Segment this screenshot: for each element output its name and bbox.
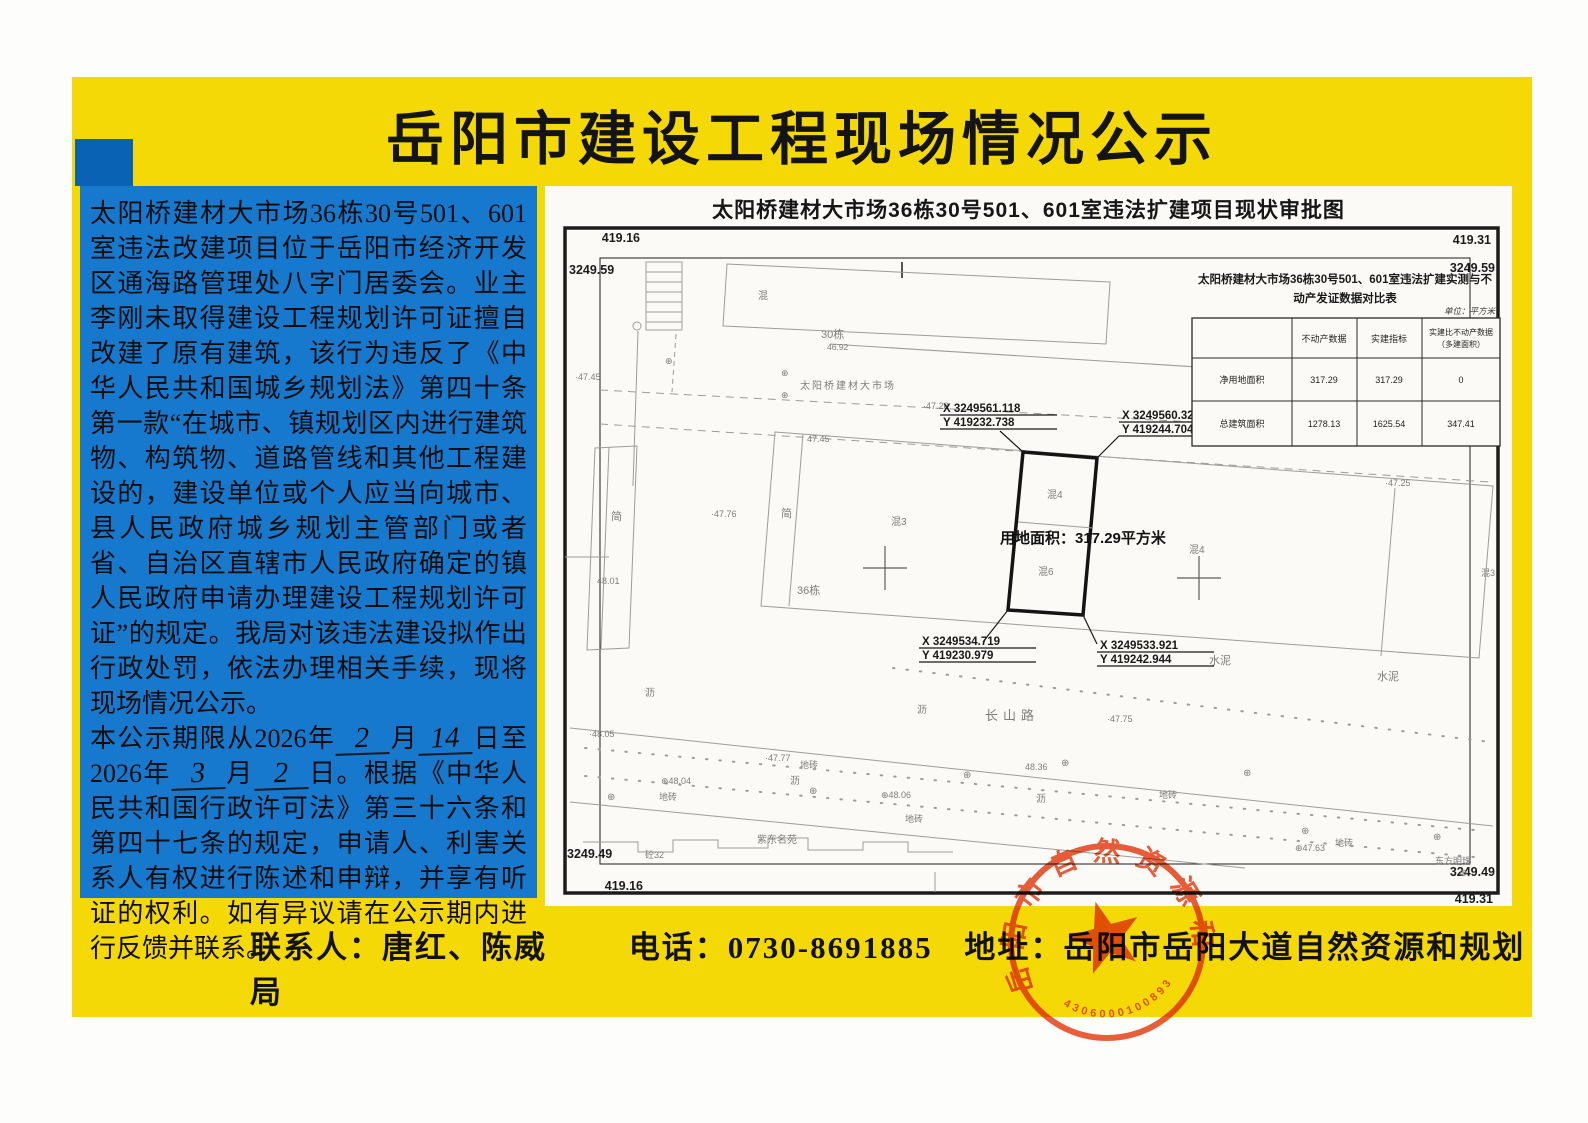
table-col-1: 不动产数据	[1301, 333, 1346, 344]
coord-tr-x: X 3249560.321	[1122, 410, 1201, 422]
coord-br-x: X 3249533.921	[1100, 640, 1179, 652]
notice-month-char1: 月	[389, 724, 418, 753]
map-label-elev4745-edge: ·47.45	[575, 372, 601, 382]
official-seal: 岳阳市自然资源和规划局 4306000100893	[996, 830, 1218, 1052]
map-label-market: 太阳桥建材大市场	[800, 379, 896, 392]
grid-br-side: 3249.49	[1450, 865, 1495, 879]
map-label-dizhuan-a: 地砖	[800, 759, 818, 770]
map-label-elev4804: ⊕48.04	[661, 776, 691, 786]
table-row2-v3: 347.41	[1447, 419, 1475, 429]
footer-contact-line: 联系人：唐红、陈威 电话：0730-8691885 地址：岳阳市岳阳大道自然资源…	[72, 922, 1532, 1012]
scan-corner-artifact	[75, 139, 133, 186]
map-label-li-d: 沥	[1036, 793, 1046, 805]
handwritten-start-month: 2	[335, 722, 390, 756]
table-row2-name: 总建筑面积	[1219, 418, 1264, 429]
grid-bl-side: 3249.49	[567, 847, 612, 861]
coord-br-y: Y 419242.944	[1100, 654, 1172, 666]
svg-text:⊕: ⊕	[781, 368, 789, 378]
svg-text:⊕: ⊕	[665, 356, 673, 366]
map-label-zidong: 紫东名苑	[757, 833, 797, 846]
svg-text:⊕: ⊕	[1459, 868, 1467, 879]
map-label-dizhuan-e: 地砖	[1335, 837, 1353, 848]
footer-phone: 电话：0730-8691885	[629, 930, 933, 965]
svg-text:⊕: ⊕	[1243, 768, 1251, 779]
table-row2-v2: 1625.54	[1373, 419, 1406, 429]
notice-text-panel: 太阳桥建材大市场36栋30号501、601室违法改建项目位于岳阳市经济开发区通海…	[80, 186, 537, 898]
map-label-bldg30: 30栋	[821, 327, 844, 341]
grid-br-bottom: 419.31	[1455, 892, 1493, 906]
table-unit-label: 单位：平方米	[1444, 306, 1497, 316]
map-label-jian-left: 简	[611, 509, 622, 523]
grid-tl-side: 3249.59	[569, 263, 614, 277]
map-label-dizhuan-b: 地砖	[659, 791, 677, 802]
table-row1-v2: 317.29	[1375, 375, 1403, 385]
map-label-elev4836: 48.36	[1025, 762, 1048, 772]
coord-tl-y: Y 419232.738	[943, 417, 1015, 429]
coord-tl-x: X 3249561.118	[943, 403, 1021, 415]
map-label-hun3-a: 混3	[891, 516, 907, 528]
map-label-shuini-a: 水泥	[1209, 654, 1231, 667]
cadastral-map: 419.16 3249.59 419.31 3249.59 3249.49 41…	[545, 186, 1512, 906]
coord-tr-y: Y 419244.704	[1122, 424, 1194, 436]
map-label-jian-mid: 简	[781, 506, 792, 520]
svg-text:⊕: ⊕	[809, 786, 817, 797]
map-label-elev4776: ·47.76	[711, 509, 737, 519]
map-label-li-b: 沥	[917, 704, 927, 716]
svg-text:⊕: ⊕	[1061, 758, 1069, 769]
svg-text:⊕: ⊕	[1301, 826, 1309, 837]
table-col-3b: （多建面积）	[1437, 339, 1485, 349]
svg-text:⊕: ⊕	[781, 390, 789, 400]
map-label-hun3-edge: 混3	[1481, 568, 1495, 578]
map-label-elev4745-roof: 47.45	[807, 434, 830, 444]
grid-tr-top: 419.31	[1453, 233, 1491, 247]
svg-text:⊕: ⊕	[607, 792, 615, 803]
svg-text:⊕: ⊕	[963, 770, 971, 781]
map-label-dizhuan-c: 地砖	[905, 813, 923, 824]
coord-bl-y: Y 419230.979	[922, 650, 993, 662]
coord-bl-x: X 3249534.719	[922, 636, 1000, 648]
map-label-hun-top: 混	[758, 290, 768, 302]
footer-contact: 联系人：唐红、陈威	[250, 930, 547, 965]
survey-map-panel: 太阳桥建材大市场36栋30号501、601室违法扩建项目现状审批图 419.16…	[545, 186, 1512, 906]
grid-bl-bottom: 419.16	[605, 879, 643, 893]
seal-star-icon	[1061, 892, 1149, 978]
map-label-elev4806: ⊕48.06	[881, 790, 911, 800]
page-title: 岳阳市建设工程现场情况公示	[72, 92, 1532, 176]
map-label-hun4-right: 混4	[1189, 544, 1205, 556]
map-label-changshan-road: 长山路	[985, 708, 1039, 723]
parcel-area-label: 用地面积：317.29平方米	[1000, 529, 1167, 547]
table-col-3a: 实建比不动产数据	[1429, 327, 1493, 337]
map-label-dongfang: 东方明珠	[1435, 855, 1471, 866]
table-title-line1: 太阳桥建材大市场36栋30号501、601室违法扩建实测与不	[1197, 272, 1492, 286]
notice-period-prefix: 本公示期限从2026年	[90, 724, 335, 753]
seal-number: 4306000100893	[1059, 968, 1181, 1035]
map-label-elev4763: ⊕47.63	[1295, 843, 1325, 853]
table-row2-v1: 1278.13	[1308, 419, 1341, 429]
map-label-dizhuan-d: 地砖	[1159, 789, 1177, 800]
map-label-li-a: 沥	[645, 687, 655, 699]
table-col-2: 实建指标	[1371, 333, 1407, 344]
map-label-elev4801: 48.01	[597, 576, 620, 586]
notice-month-char2: 月	[225, 759, 254, 788]
map-label-elev4775: ·47.75	[1107, 714, 1133, 724]
grid-tl-top: 419.16	[602, 231, 640, 245]
map-label-li-c: 沥	[790, 775, 800, 787]
table-title-line2: 动产发证数据对比表	[1293, 291, 1397, 305]
grid-tr-side: 3249.59	[1450, 261, 1495, 275]
map-label-elev4692: 46.92	[827, 342, 849, 352]
svg-text:⊕: ⊕	[1433, 832, 1441, 843]
map-label-bldg36: 36栋	[797, 583, 820, 597]
map-label-elev4725: ·47.25	[1385, 478, 1411, 488]
map-label-tong32: 砼32	[645, 849, 664, 860]
map-label-hun6-parcel: 混6	[1038, 566, 1054, 578]
handwritten-end-day: 2	[253, 757, 308, 791]
table-row1-v3: 0	[1458, 375, 1463, 385]
handwritten-start-day: 14	[418, 722, 473, 756]
map-label-shuini-b: 水泥	[1377, 670, 1399, 683]
table-row1-name: 净用地面积	[1219, 374, 1264, 385]
svg-text:4306000100893: 4306000100893	[1059, 968, 1181, 1035]
notice-paragraph-1: 太阳桥建材大市场36栋30号501、601室违法改建项目位于岳阳市经济开发区通海…	[90, 196, 527, 721]
scanned-notice-page: 岳阳市建设工程现场情况公示 太阳桥建材大市场36栋30号501、601室违法改建…	[0, 0, 1588, 1123]
handwritten-end-month: 3	[170, 757, 225, 791]
map-label-elev4777: ·47.77	[765, 753, 791, 763]
map-label-elev4805: ·48.05	[589, 729, 615, 739]
map-label-hun4-parcel: 混4	[1047, 489, 1063, 501]
table-row1-v1: 317.29	[1310, 375, 1338, 385]
comparison-table: 太阳桥建材大市场36栋30号501、601室违法扩建实测与不 动产发证数据对比表…	[1192, 272, 1500, 446]
